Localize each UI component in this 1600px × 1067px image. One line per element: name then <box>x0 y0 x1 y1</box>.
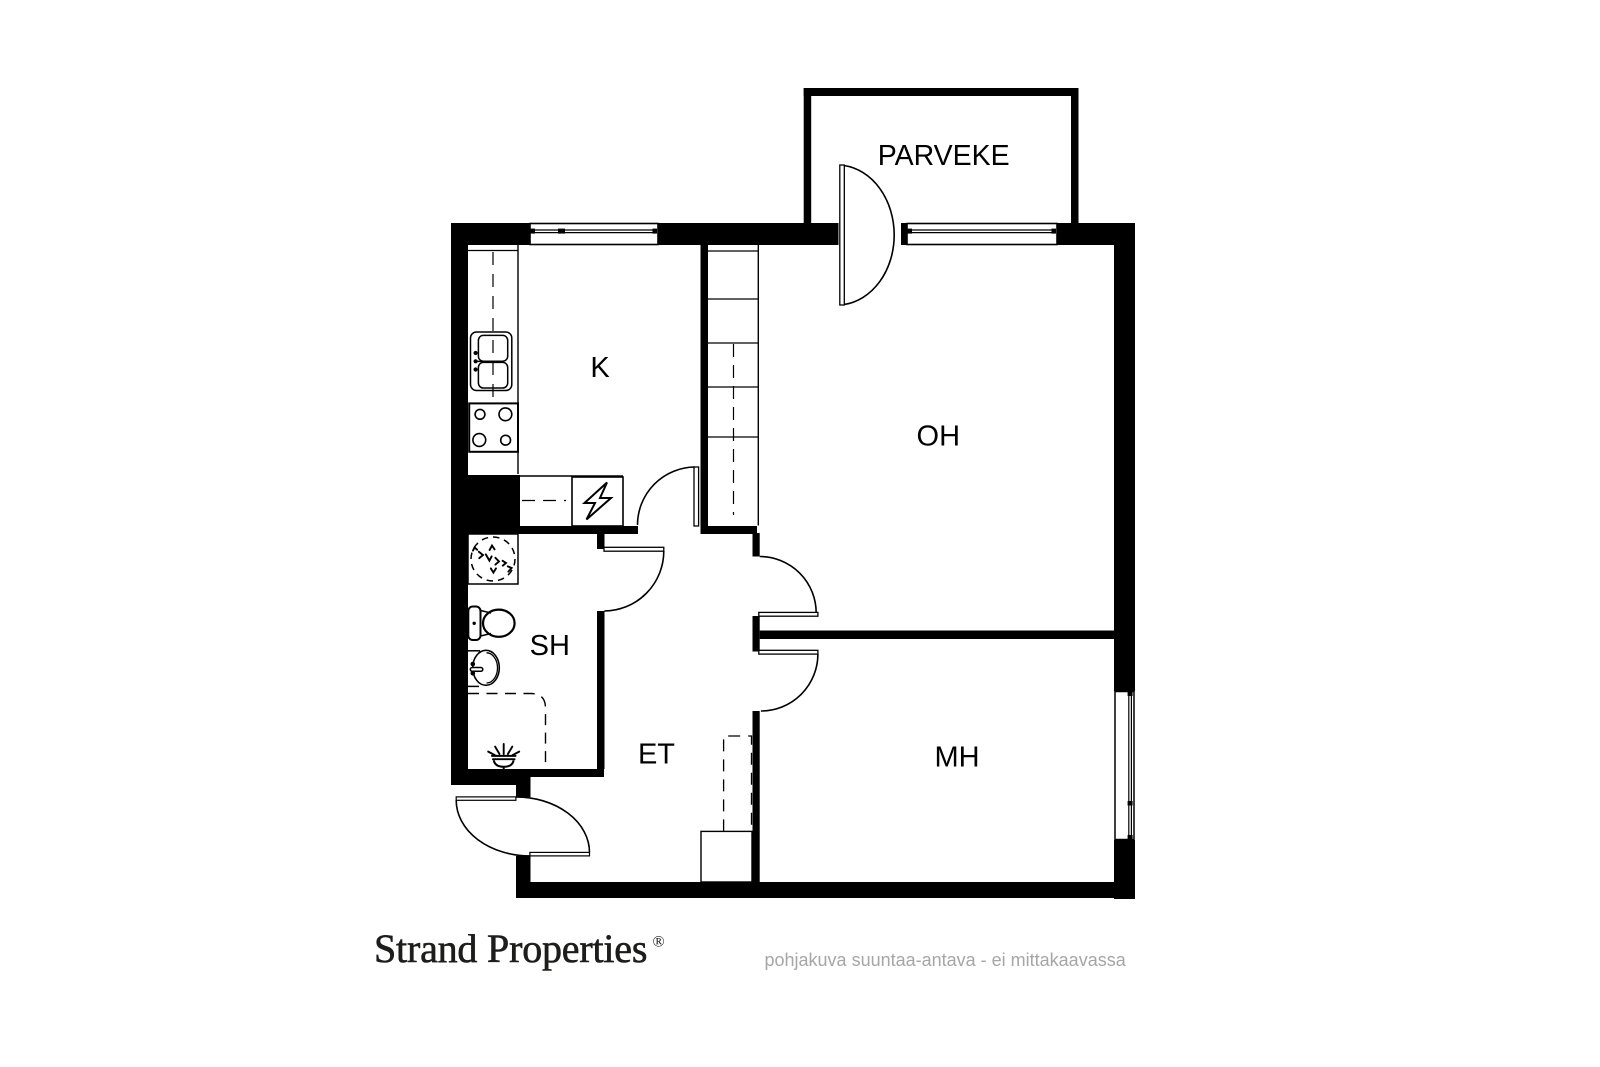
svg-text:SH: SH <box>530 630 570 662</box>
svg-text:MH: MH <box>934 742 979 774</box>
svg-text:PARVEKE: PARVEKE <box>878 140 1010 172</box>
svg-text:Strand Properties: Strand Properties <box>374 926 647 971</box>
svg-text:ET: ET <box>638 739 675 771</box>
svg-text:K: K <box>590 352 610 384</box>
svg-text:®: ® <box>653 934 665 951</box>
svg-text:OH: OH <box>917 421 961 453</box>
svg-text:pohjakuva suuntaa-antava - ei: pohjakuva suuntaa-antava - ei mittakaava… <box>765 950 1127 970</box>
